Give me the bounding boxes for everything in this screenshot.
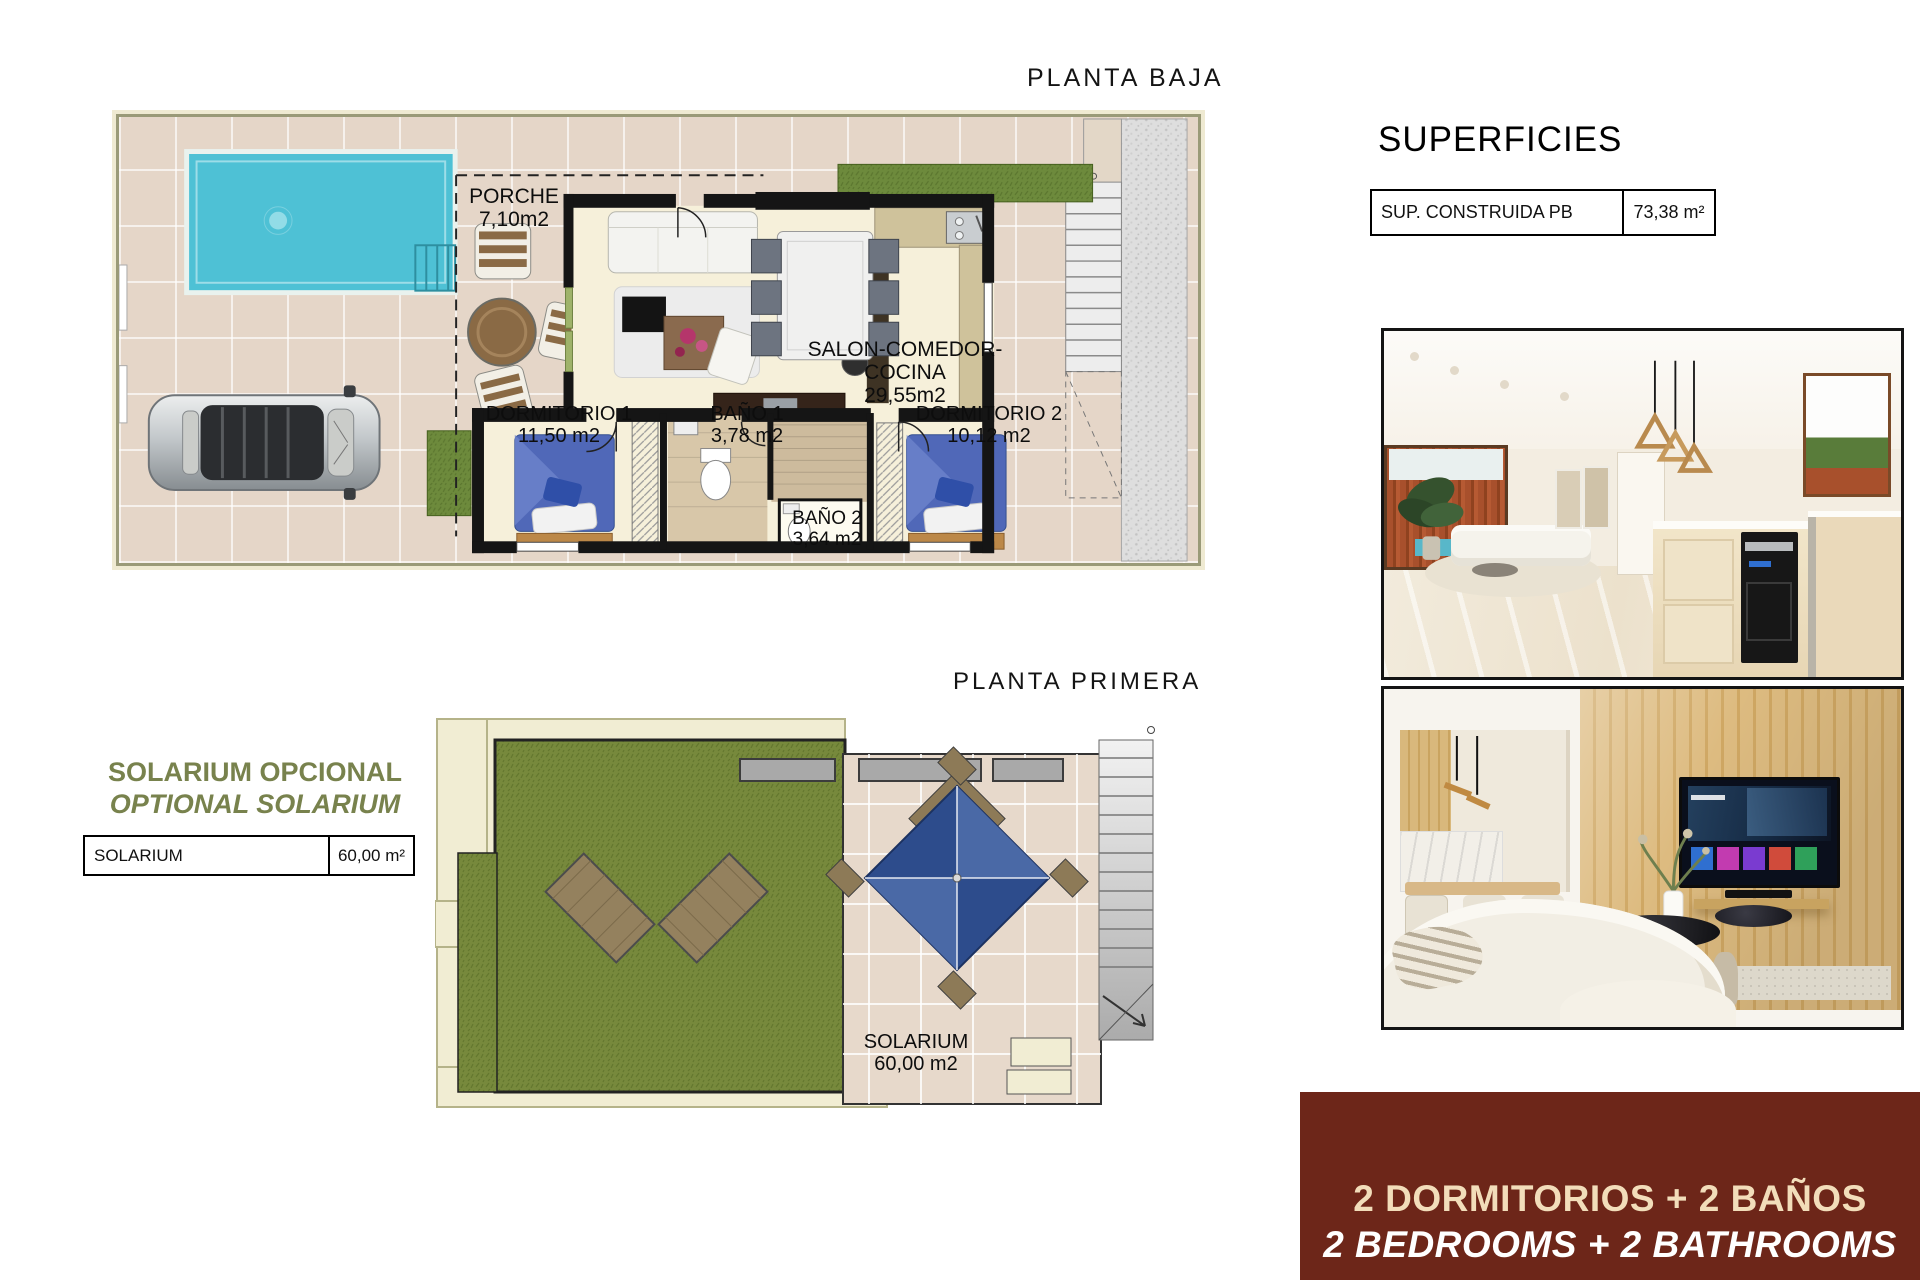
room-label-porche: PORCHE 7,10m2 xyxy=(444,185,584,231)
superficies-table: SUP. CONSTRUIDA PB 73,38 m² xyxy=(1370,189,1716,236)
solarium-note: SOLARIUM OPCIONAL OPTIONAL SOLARIUM xyxy=(80,757,430,821)
room-label-dormitorio1: DORMITORIO 1 11,50 m2 xyxy=(479,403,639,447)
photo1-wall-art-1 xyxy=(1555,469,1582,528)
superficies-row-value: 73,38 m² xyxy=(1624,191,1714,234)
kitchen-dining-photo xyxy=(1381,328,1904,680)
first-floor-plan-graphic xyxy=(435,718,1156,1108)
solarium-table-label: SOLARIUM xyxy=(85,837,330,874)
photo1-right-counter xyxy=(1808,511,1901,677)
bedrooms-bathrooms-banner: 2 DORMITORIOS + 2 BAÑOS 2 BEDROOMS + 2 B… xyxy=(1300,1092,1920,1280)
solarium-table: SOLARIUM 60,00 m² xyxy=(83,835,415,876)
planters xyxy=(740,759,1063,781)
living-room-tv-photo xyxy=(1381,686,1904,1030)
first-floor-plan: SOLARIUM 60,00 m2 xyxy=(435,718,1156,1108)
stairs xyxy=(1099,727,1155,1041)
room-label-dormitorio2: DORMITORIO 2 10,12 m2 xyxy=(909,403,1069,447)
banner-line1: 2 DORMITORIOS + 2 BAÑOS xyxy=(1353,1176,1867,1222)
room-label-solarium: SOLARIUM 60,00 m2 xyxy=(846,1031,986,1075)
photo1-oven xyxy=(1741,532,1798,663)
superficies-row-label: SUP. CONSTRUIDA PB xyxy=(1372,191,1624,234)
photo1-wall-art-2 xyxy=(1583,466,1610,529)
solarium-benches xyxy=(1007,1038,1071,1094)
room-label-bano2: BAÑO 2 3,64 m2 xyxy=(777,509,877,551)
planta-baja-title: PLANTA BAJA xyxy=(1027,64,1224,93)
banner-line2: 2 BEDROOMS + 2 BATHROOMS xyxy=(1323,1222,1897,1268)
photo1-coffee-table xyxy=(1472,563,1519,577)
pool xyxy=(187,152,456,293)
photo1-right-window xyxy=(1803,373,1891,498)
photo1-spotlights xyxy=(1410,352,1419,361)
ground-floor-plan-graphic xyxy=(119,117,1198,563)
planta-primera-title: PLANTA PRIMERA xyxy=(953,668,1201,696)
photo2-dining-table xyxy=(1405,882,1560,896)
car xyxy=(149,385,380,499)
ground-floor-plan: PORCHE 7,10m2 SALON-COMEDOR-COCINA 29,55… xyxy=(116,114,1201,566)
photo1-sofa xyxy=(1451,525,1591,567)
grass-extension xyxy=(458,853,497,1092)
photo1-drawers-2 xyxy=(1663,604,1734,663)
hedge-side xyxy=(427,431,471,516)
photo2-pendant xyxy=(1436,736,1498,837)
photo1-drawers xyxy=(1663,539,1734,602)
room-label-bano1: BAÑO 1 3,78 m2 xyxy=(692,403,802,447)
solarium-note-line1: SOLARIUM OPCIONAL xyxy=(80,757,430,789)
superficies-title: SUPERFICIES xyxy=(1378,120,1622,160)
photo2-soundbar xyxy=(1725,890,1792,897)
solarium-note-line2: OPTIONAL SOLARIUM xyxy=(80,789,430,821)
solarium-table-value: 60,00 m² xyxy=(330,837,413,874)
room-label-salon: SALON-COMEDOR-COCINA 29,55m2 xyxy=(775,338,1035,407)
photo1-pendant-lights xyxy=(1627,352,1720,490)
